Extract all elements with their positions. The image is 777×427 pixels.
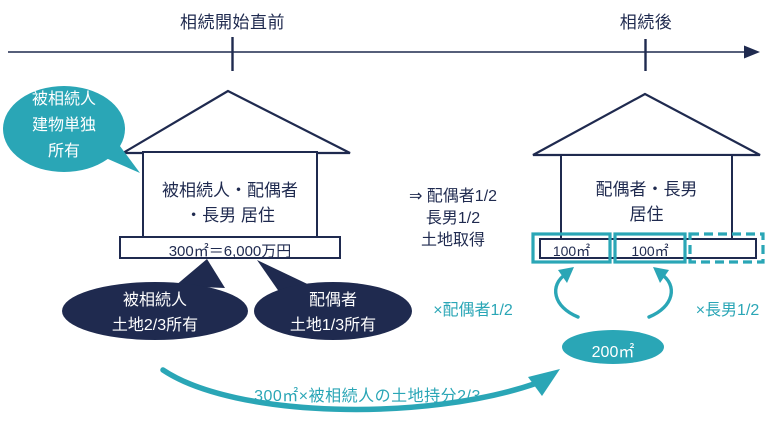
decedent-share-line-1: 被相続人 — [62, 288, 248, 313]
result-area-label: 200㎡ — [563, 338, 663, 362]
left-house-roof — [123, 91, 350, 153]
transfer-line-3: 土地取得 — [388, 230, 518, 252]
timeline-label-after: 相続後 — [596, 8, 696, 33]
spouse-share-line-2: 土地1/3所有 — [240, 313, 426, 338]
spouse-share-text: 配偶者 土地1/3所有 — [240, 288, 426, 338]
right-house-residents-line-1: 配偶者・長男 — [561, 177, 732, 202]
plot-label-spouse: 100㎡ — [535, 241, 608, 261]
transfer-line-1: ⇒ 配偶者1/2 — [388, 186, 518, 208]
left-house-land-label: 300㎡＝6,000万円 — [120, 240, 340, 261]
multiplier-spouse-label: ×配偶者1/2 — [408, 296, 538, 320]
building-callout-line-3: 所有 — [4, 139, 124, 165]
spouse-share-line-1: 配偶者 — [240, 288, 426, 313]
transfer-note: ⇒ 配偶者1/2 長男1/2 土地取得 — [388, 186, 518, 252]
building-callout-line-2: 建物単独 — [4, 113, 124, 139]
left-house-residents-line-1: 被相続人・配偶者 — [143, 178, 317, 203]
multiplier-son-label: ×長男1/2 — [680, 296, 775, 320]
left-house-residents-line-2: ・長男 居住 — [143, 203, 317, 228]
transfer-line-2: 長男1/2 — [388, 208, 518, 230]
decedent-share-text: 被相続人 土地2/3所有 — [62, 288, 248, 338]
building-callout-text: 被相続人 建物単独 所有 — [4, 87, 124, 165]
plot-label-son: 100㎡ — [617, 241, 683, 261]
right-house-residents-line-2: 居住 — [561, 202, 732, 227]
right-house-roof — [533, 94, 760, 155]
timeline-arrowhead-icon — [744, 46, 760, 59]
inheritance-land-diagram: 相続開始直前 相続後 被相続人 建物単独 所有 被相続人・配偶者 ・長男 居住 … — [0, 0, 777, 427]
decedent-share-line-2: 土地2/3所有 — [62, 313, 248, 338]
timeline-label-before: 相続開始直前 — [157, 8, 308, 33]
formula-label: 300㎡×被相続人の土地持分2/3 — [215, 382, 520, 406]
right-house-residents: 配偶者・長男 居住 — [561, 177, 732, 227]
formula-arrow-head-icon — [528, 369, 560, 396]
building-callout-line-1: 被相続人 — [4, 87, 124, 113]
left-house-residents: 被相続人・配偶者 ・長男 居住 — [143, 178, 317, 228]
